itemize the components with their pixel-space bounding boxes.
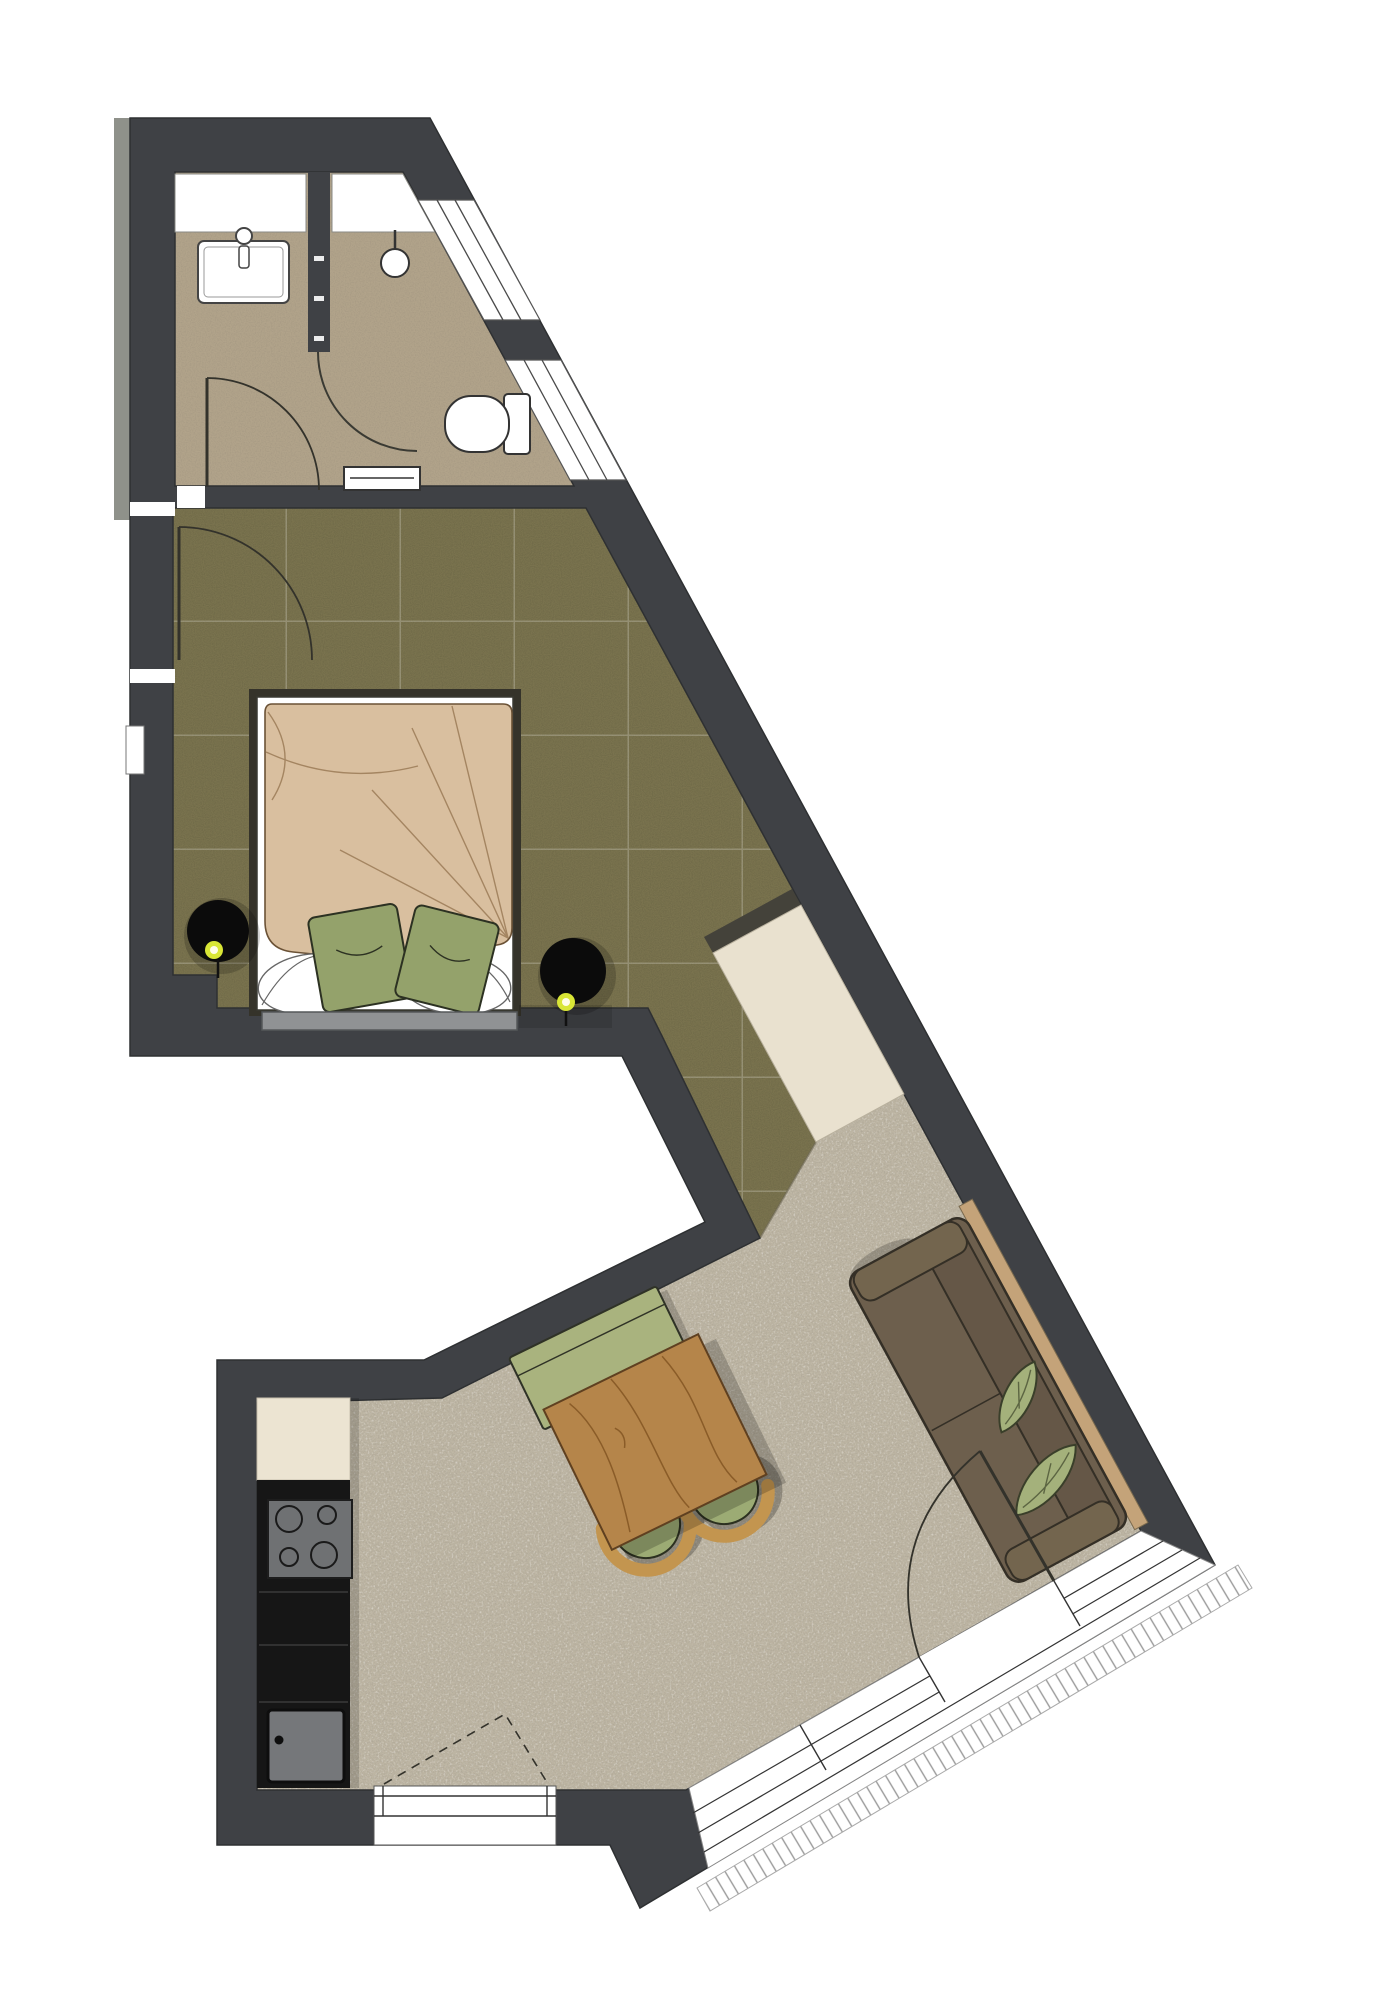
- exterior-wall-lining: [114, 118, 131, 520]
- floor-plan-page: [0, 0, 1373, 2000]
- shower-partition: [308, 172, 330, 352]
- bathroom-door-jamb: [177, 486, 205, 508]
- sink-faucet-icon: [275, 1736, 284, 1745]
- green-pillow-left: [307, 903, 412, 1013]
- bathroom-window-sill: [175, 174, 306, 232]
- partition-dash: [314, 296, 324, 301]
- entry-jamb-bottom: [130, 669, 175, 683]
- towel-radiator: [344, 467, 420, 490]
- kitchenette: [257, 1398, 359, 1788]
- partition-dash: [314, 336, 324, 341]
- bed-footboard-bench: [262, 1012, 517, 1030]
- faucet-icon: [236, 228, 252, 244]
- tall-cabinet: [257, 1398, 350, 1480]
- kitchen-sink: [268, 1710, 344, 1782]
- entry-jamb-top: [130, 502, 175, 516]
- left-wall-niche: [126, 726, 144, 774]
- floor-plan-drawing: [0, 0, 1373, 2000]
- toilet: [445, 394, 530, 454]
- partition-dash: [314, 256, 324, 261]
- counter-edge-shadow: [350, 1398, 359, 1788]
- cooktop: [268, 1500, 352, 1578]
